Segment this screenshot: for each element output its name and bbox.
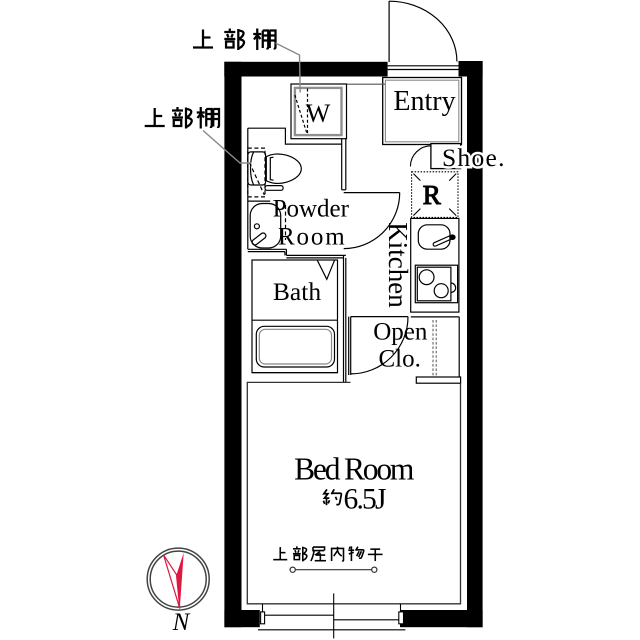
svg-text:Entry: Entry	[393, 86, 455, 117]
svg-text:Bed Room: Bed Room	[294, 452, 415, 487]
svg-text:N: N	[172, 609, 191, 636]
svg-text:W: W	[306, 99, 331, 128]
svg-text:6.5J: 6.5J	[344, 484, 387, 516]
svg-text:Room: Room	[278, 224, 345, 251]
svg-text:Kitchen: Kitchen	[383, 222, 413, 308]
svg-text:Powder: Powder	[273, 196, 350, 223]
svg-text:Shoe.: Shoe.	[442, 143, 505, 172]
svg-text:Open: Open	[373, 319, 428, 346]
svg-text:Bath: Bath	[273, 277, 321, 306]
svg-text:R: R	[423, 180, 441, 210]
svg-text:Clo.: Clo.	[379, 346, 421, 373]
